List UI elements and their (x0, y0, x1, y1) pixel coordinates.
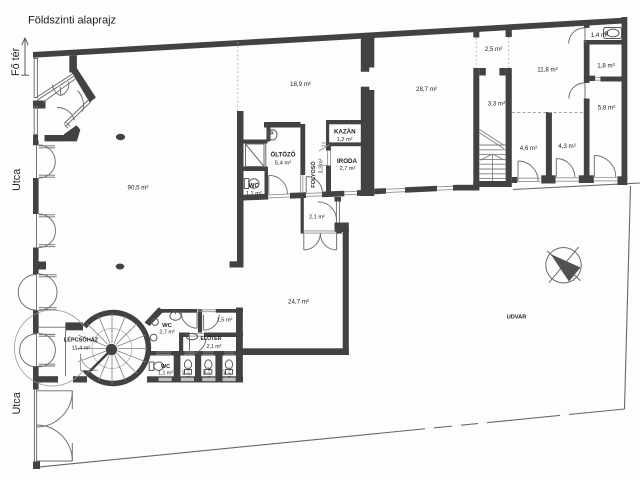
svg-text:1,2 m²: 1,2 m² (187, 366, 191, 377)
svg-text:1,1 m²: 1,1 m² (158, 371, 173, 377)
svg-text:5,4 m²: 5,4 m² (275, 161, 291, 167)
svg-text:2,7 m²: 2,7 m² (159, 329, 174, 335)
svg-text:Földszinti alaprajz: Földszinti alaprajz (28, 14, 116, 26)
svg-text:3,3 m²: 3,3 m² (319, 158, 325, 173)
svg-text:2,1 m²: 2,1 m² (309, 215, 325, 221)
svg-text:4,6 m²: 4,6 m² (520, 145, 538, 152)
svg-text:WC: WC (161, 364, 170, 370)
svg-text:UDVAR: UDVAR (507, 315, 527, 321)
svg-text:1,1 m²: 1,1 m² (246, 191, 262, 197)
svg-text:ELŐTÉR: ELŐTÉR (200, 334, 221, 342)
svg-text:28,7 m²: 28,7 m² (416, 86, 437, 93)
svg-text:Fő tér: Fő tér (10, 47, 22, 76)
svg-text:1,2 m²: 1,2 m² (207, 366, 211, 377)
svg-text:KAZÁN: KAZÁN (334, 128, 356, 135)
svg-text:11,4 m²: 11,4 m² (72, 345, 91, 351)
svg-text:WC: WC (249, 184, 260, 190)
svg-text:IRODA: IRODA (337, 158, 357, 165)
svg-text:1,2 m²: 1,2 m² (228, 366, 232, 377)
svg-text:Utca: Utca (11, 392, 23, 414)
svg-text:1,4 m²: 1,4 m² (591, 32, 609, 39)
svg-text:FOLYOSÓ: FOLYOSÓ (309, 161, 317, 188)
svg-text:WC: WC (162, 323, 172, 329)
svg-text:11,8 m²: 11,8 m² (537, 67, 558, 74)
svg-text:1,8 m²: 1,8 m² (597, 63, 615, 70)
svg-text:2,7 m²: 2,7 m² (340, 166, 356, 172)
svg-text:2,1 m²: 2,1 m² (207, 344, 222, 350)
svg-text:4,3 m²: 4,3 m² (558, 143, 576, 150)
svg-text:18,9 m²: 18,9 m² (290, 81, 311, 88)
svg-text:Utca: Utca (11, 169, 23, 191)
svg-text:90,5 m²: 90,5 m² (128, 185, 149, 192)
svg-text:1,2 m²: 1,2 m² (337, 137, 353, 143)
svg-text:WC: WC (203, 369, 207, 376)
svg-text:1,5 m²: 1,5 m² (217, 318, 233, 324)
svg-text:2,5 m²: 2,5 m² (485, 46, 503, 53)
svg-text:3,3 m²: 3,3 m² (488, 101, 506, 108)
svg-text:24,7 m²: 24,7 m² (288, 299, 309, 306)
svg-text:WC: WC (223, 369, 227, 376)
svg-text:5,8 m²: 5,8 m² (598, 105, 616, 112)
svg-text:WC: WC (182, 369, 186, 376)
svg-text:LÉPCSŐHÁZ: LÉPCSŐHÁZ (64, 336, 99, 344)
svg-text:ÖLTÖZŐ: ÖLTÖZŐ (271, 152, 296, 159)
